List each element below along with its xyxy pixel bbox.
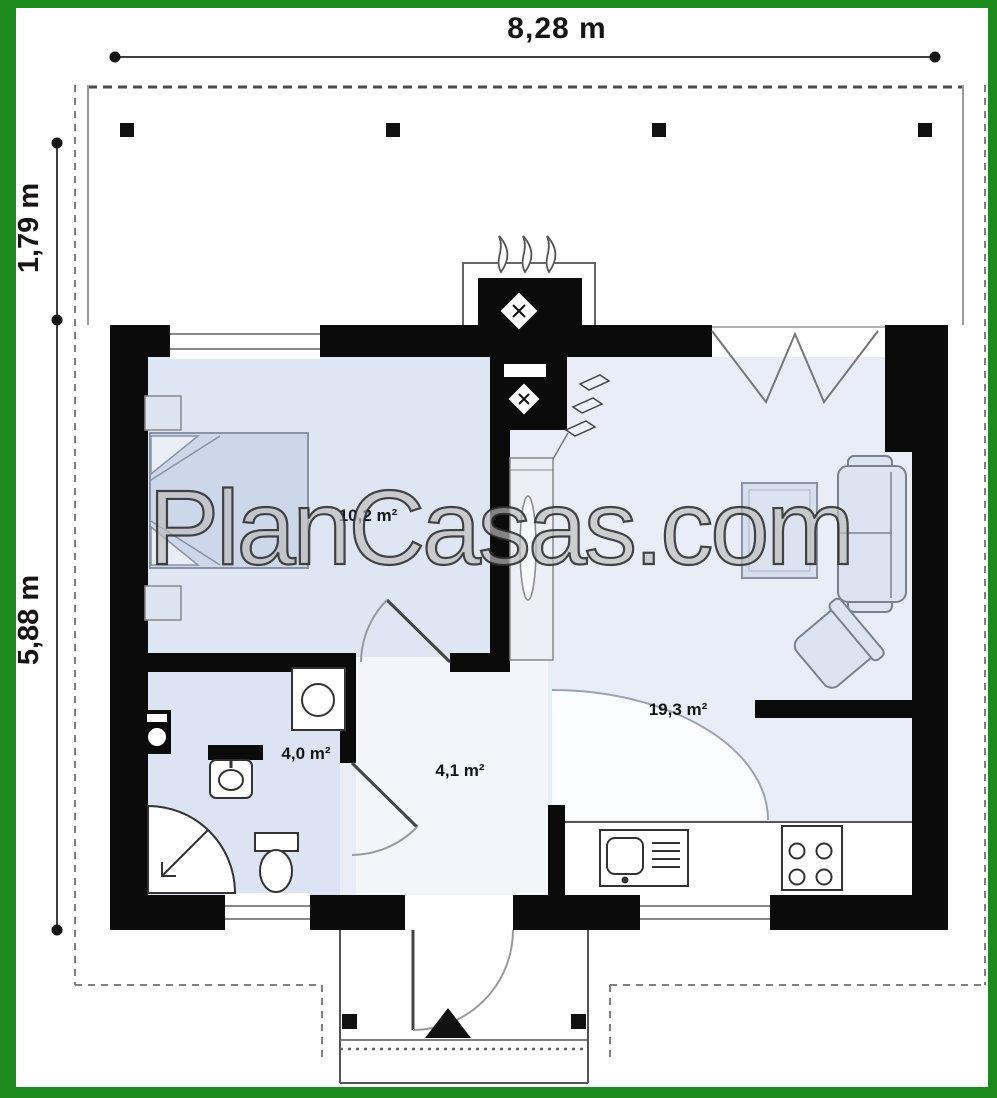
stove bbox=[782, 826, 842, 890]
dining-table bbox=[742, 483, 817, 578]
washbasin bbox=[210, 760, 252, 798]
room-label-hall: 4,1 m² bbox=[405, 761, 515, 781]
terrace-post bbox=[120, 123, 134, 137]
living-kitchen-wall-stub bbox=[755, 700, 912, 718]
dimension-label-width: 8,28 m bbox=[437, 12, 677, 46]
room-label-living-kitchen: 19,3 m² bbox=[623, 700, 733, 720]
room-label-bedroom: 10,2 m² bbox=[313, 506, 423, 526]
nightstand bbox=[145, 586, 181, 620]
kitchen-wall-stub bbox=[548, 805, 565, 895]
chimney-vent-slot bbox=[504, 364, 546, 377]
porch-floor bbox=[340, 930, 588, 1083]
boiler bbox=[143, 710, 171, 754]
nightstand bbox=[145, 396, 181, 430]
room-label-bathroom: 4,0 m² bbox=[251, 744, 361, 764]
terrace-post bbox=[652, 123, 666, 137]
kitchen-sink bbox=[600, 830, 688, 886]
dimension-label-terrace-depth: 1,79 m bbox=[13, 148, 47, 308]
bathroom-window bbox=[225, 893, 310, 932]
bedroom-window bbox=[170, 323, 320, 359]
porch-post bbox=[342, 1014, 357, 1029]
floor-plan-drawing bbox=[0, 0, 997, 1098]
floor-plan-page: 8,28 m 1,79 m 5,88 m 10,2 m² 4,0 m² 4,1 … bbox=[0, 0, 997, 1098]
kitchen-window bbox=[640, 893, 770, 932]
washing-machine bbox=[292, 668, 345, 730]
terrace-post bbox=[918, 123, 932, 137]
porch-post bbox=[571, 1014, 586, 1029]
bed bbox=[150, 433, 308, 568]
sofa bbox=[838, 456, 906, 612]
dimension-label-house-depth: 5,88 m bbox=[13, 540, 47, 700]
terrace-post bbox=[386, 123, 400, 137]
wardrobe-cabinet bbox=[510, 458, 553, 660]
